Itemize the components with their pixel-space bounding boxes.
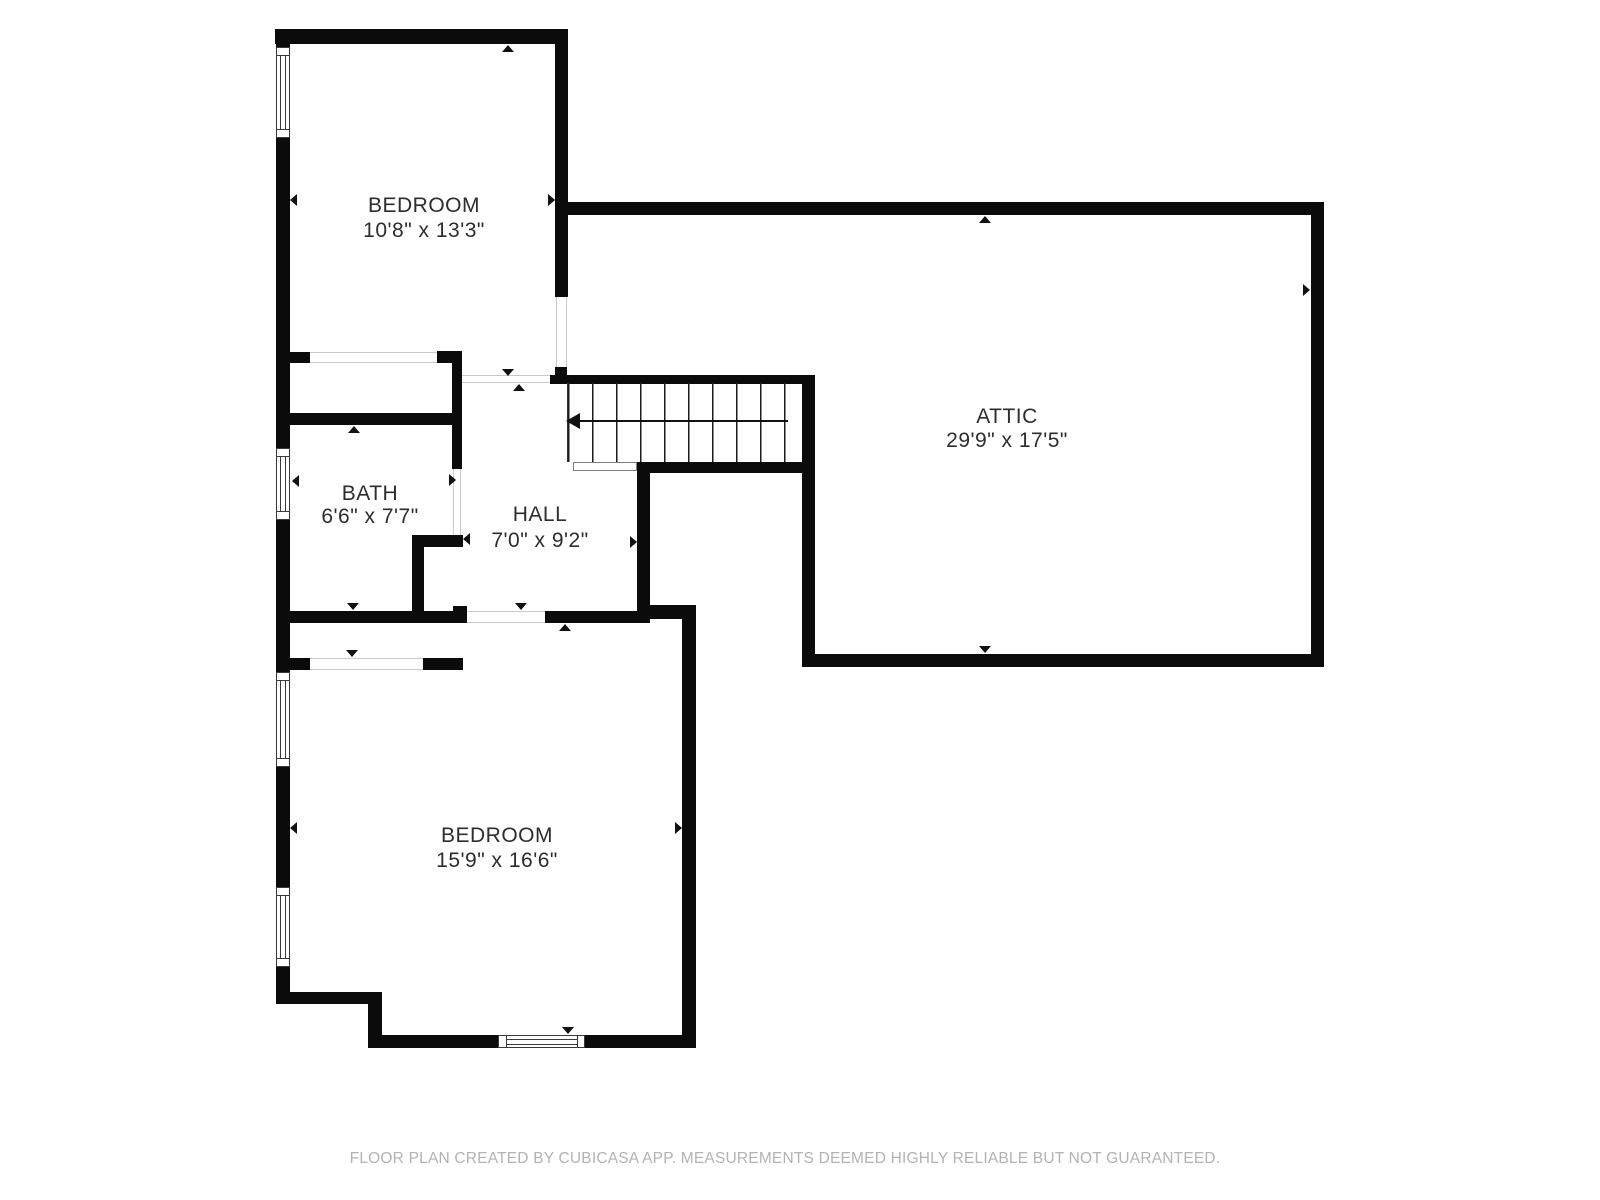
wall-segment [423,658,463,670]
wall-segment [452,351,462,469]
wall-arrow-marker [513,384,525,391]
door-opening [467,611,545,623]
stair-direction-arrow [566,413,580,429]
window-glass-line [277,456,289,457]
wall-segment [453,606,467,623]
window-glass-line [285,680,286,759]
wall-arrow-marker [346,650,358,657]
window-symbol [276,887,290,967]
window-glass-line [285,895,286,959]
room-dimensions-attic: 29'9" x 17'5" [946,429,1068,453]
wall-segment [1311,202,1324,667]
window-glass-line [577,1036,578,1047]
window-glass-line [277,511,289,512]
wall-segment [802,654,1324,667]
window-glass-line [277,129,289,130]
wall-segment [276,29,290,48]
stair-direction-line [580,420,788,422]
window-glass-line [280,456,281,512]
wall-arrow-marker [502,369,514,376]
wall-arrow-marker [290,194,297,206]
window-glass-line [280,55,281,130]
room-dimensions-hall: 7'0" x 9'2" [491,529,588,553]
door-opening [462,375,555,383]
wall-segment [276,413,455,425]
wall-arrow-marker [548,194,555,206]
wall-segment [276,992,382,1004]
wall-arrow-marker [515,603,527,610]
room-label-bath: BATH [342,482,398,506]
room-label-hall: HALL [513,503,568,527]
wall-arrow-marker [1303,284,1310,296]
wall-segment [290,658,310,670]
wall-arrow-marker [348,426,360,433]
wall-arrow-marker [347,603,359,610]
wall-segment [412,547,424,612]
window-glass-line [285,456,286,512]
wall-segment [276,767,290,887]
wall-segment [276,520,290,672]
wall-arrow-marker [559,624,571,631]
window-glass-line [506,1036,507,1047]
wall-segment [290,352,310,363]
window-glass-line [277,758,289,759]
wall-segment [637,462,650,612]
room-dimensions-bedroom-1: 10'8" x 13'3" [363,219,485,243]
wall-arrow-marker [463,533,470,545]
window-glass-line [277,55,289,56]
wall-arrow-marker [562,1027,574,1034]
wall-segment [637,462,815,473]
wall-arrow-marker [290,822,297,834]
footer-disclaimer: FLOOR PLAN CREATED BY CUBICASA APP. MEAS… [350,1150,1221,1168]
window-glass-line [285,55,286,130]
wall-segment [276,611,467,623]
room-dimensions-bedroom-2: 15'9" x 16'6" [436,849,558,873]
window-symbol [276,47,290,138]
staircase-treads [567,383,807,462]
window-glass-line [506,1044,577,1045]
wall-segment [276,138,290,448]
window-symbol [276,448,290,520]
window-glass-line [277,958,289,959]
wall-arrow-marker [292,475,299,487]
wall-segment [412,535,463,547]
door-opening [556,297,567,375]
window-glass-line [280,895,281,959]
wall-segment [275,29,568,44]
door-opening [310,352,437,363]
wall-segment [682,605,696,1048]
wall-segment [545,611,650,623]
wall-segment [368,1035,498,1048]
room-label-bedroom-1: BEDROOM [368,194,480,218]
room-label-attic: ATTIC [976,405,1038,429]
wall-segment [368,992,382,1047]
wall-segment [568,202,1324,215]
room-label-bedroom-2: BEDROOM [441,824,553,848]
window-glass-line [506,1039,577,1040]
window-glass-line [280,680,281,759]
wall-segment [585,1035,696,1048]
window-glass-line [277,680,289,681]
floor-plan-canvas: BEDROOM10'8" x 13'3"ATTIC29'9" x 17'5"BA… [0,0,1600,1200]
wall-arrow-marker [675,822,682,834]
room-dimensions-bath: 6'6" x 7'7" [321,505,418,529]
wall-arrow-marker [502,45,514,52]
wall-arrow-marker [979,646,991,653]
wall-arrow-marker [449,474,456,486]
door-opening [310,658,423,670]
window-symbol [276,672,290,767]
window-glass-line [277,895,289,896]
wall-segment [555,29,568,297]
window-symbol [498,1035,585,1048]
wall-arrow-marker [979,216,991,223]
wall-arrow-marker [630,536,637,548]
stair-landing [573,462,637,471]
